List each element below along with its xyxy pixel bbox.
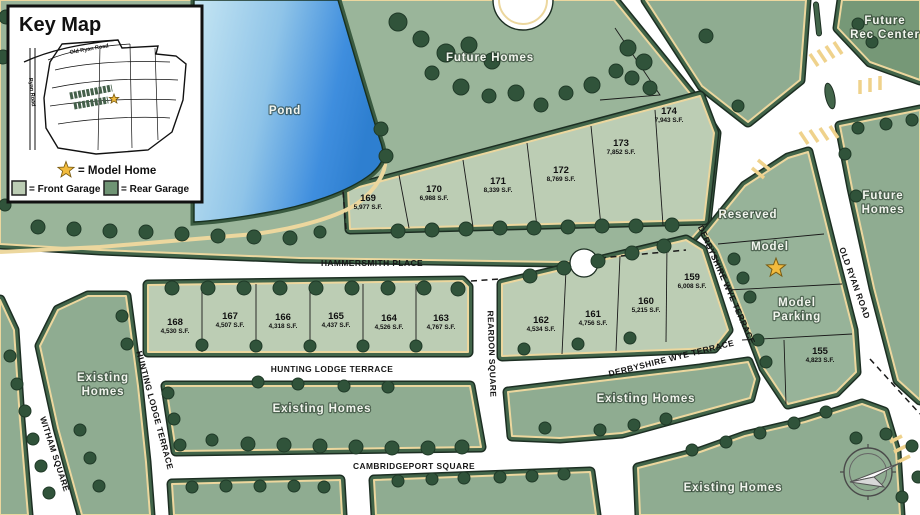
svg-text:167: 167 [222, 311, 238, 322]
future-homes-top-label: Future Homes [446, 52, 534, 64]
existing-homes-mid-right-label: Existing Homes [597, 393, 696, 405]
svg-text:165: 165 [328, 311, 345, 322]
svg-text:Rec Center: Rec Center [850, 29, 920, 41]
model-parking-label: Model [778, 297, 816, 309]
svg-text:168: 168 [167, 317, 183, 328]
svg-text:160: 160 [638, 296, 654, 307]
legend-front-garage-swatch [12, 181, 26, 195]
svg-text:159: 159 [684, 272, 700, 283]
svg-text:4,534 S.F.: 4,534 S.F. [527, 326, 556, 333]
svg-text:171: 171 [490, 176, 507, 187]
existing-homes-left-label: Existing [77, 372, 129, 384]
svg-text:4,507 S.F.: 4,507 S.F. [216, 322, 245, 329]
street-hunting-lodge-terrace-h: HUNTING LODGE TERRACE [271, 364, 394, 374]
reserved-label: Reserved [719, 209, 778, 221]
svg-text:163: 163 [433, 313, 449, 324]
future-rec-center-label: Future [864, 15, 905, 27]
svg-text:8,339 S.F.: 8,339 S.F. [484, 187, 513, 194]
median-island [813, 2, 822, 36]
key-map-box: Key Map Old Ryan Road Ryan Road = Model … [8, 6, 202, 202]
svg-text:Homes: Homes [82, 386, 125, 398]
model-label: Model [751, 241, 789, 253]
pond-label: Pond [269, 105, 301, 117]
median-island [823, 82, 837, 109]
key-map-title: Key Map [19, 14, 101, 36]
svg-text:Parking: Parking [773, 311, 821, 323]
svg-text:Homes: Homes [862, 204, 905, 216]
svg-text:5,977 S.F.: 5,977 S.F. [354, 204, 383, 211]
svg-text:5,215 S.F.: 5,215 S.F. [632, 307, 661, 314]
existing-homes-bottom-right-label: Existing Homes [684, 482, 783, 494]
svg-text:8,769 S.F.: 8,769 S.F. [547, 176, 576, 183]
svg-text:7,852 S.F.: 7,852 S.F. [607, 149, 636, 156]
svg-text:4,767 S.F.: 4,767 S.F. [427, 324, 456, 331]
svg-text:155: 155 [812, 346, 829, 357]
svg-text:6,988 S.F.: 6,988 S.F. [420, 195, 449, 202]
svg-text:170: 170 [426, 184, 442, 195]
svg-text:164: 164 [381, 313, 398, 324]
svg-text:7,943 S.F.: 7,943 S.F. [655, 117, 684, 124]
svg-text:6,008 S.F.: 6,008 S.F. [678, 283, 707, 290]
svg-text:162: 162 [533, 315, 549, 326]
svg-text:4,437 S.F.: 4,437 S.F. [322, 322, 351, 329]
svg-text:4,526 S.F.: 4,526 S.F. [375, 324, 404, 331]
svg-text:4,530 S.F.: 4,530 S.F. [161, 328, 190, 335]
legend-front-garage-label: = Front Garage [29, 184, 101, 195]
existing-homes-center-label: Existing Homes [273, 403, 372, 415]
svg-text:161: 161 [585, 309, 602, 320]
site-plan-map: Pond Future Homes Future Rec Center Futu… [0, 0, 920, 515]
svg-text:4,823 S.F.: 4,823 S.F. [806, 357, 835, 364]
svg-text:173: 173 [613, 138, 629, 149]
svg-text:166: 166 [275, 312, 291, 323]
svg-text:172: 172 [553, 165, 569, 176]
legend-model-home-label: = Model Home [78, 165, 156, 177]
legend-rear-garage-swatch [104, 181, 118, 195]
svg-text:169: 169 [360, 193, 376, 204]
legend-rear-garage-label: = Rear Garage [121, 184, 190, 195]
svg-text:174: 174 [661, 106, 678, 117]
street-reardon-square: REARDON SQUARE [485, 310, 498, 397]
future-homes-right-label: Future [862, 190, 903, 202]
street-hammersmith-place: HAMMERSMITH PLACE [321, 258, 423, 268]
street-cambridgeport-square: CAMBRIDGEPORT SQUARE [353, 461, 475, 471]
svg-text:4,318 S.F.: 4,318 S.F. [269, 323, 298, 330]
svg-text:4,756 S.F.: 4,756 S.F. [579, 320, 608, 327]
